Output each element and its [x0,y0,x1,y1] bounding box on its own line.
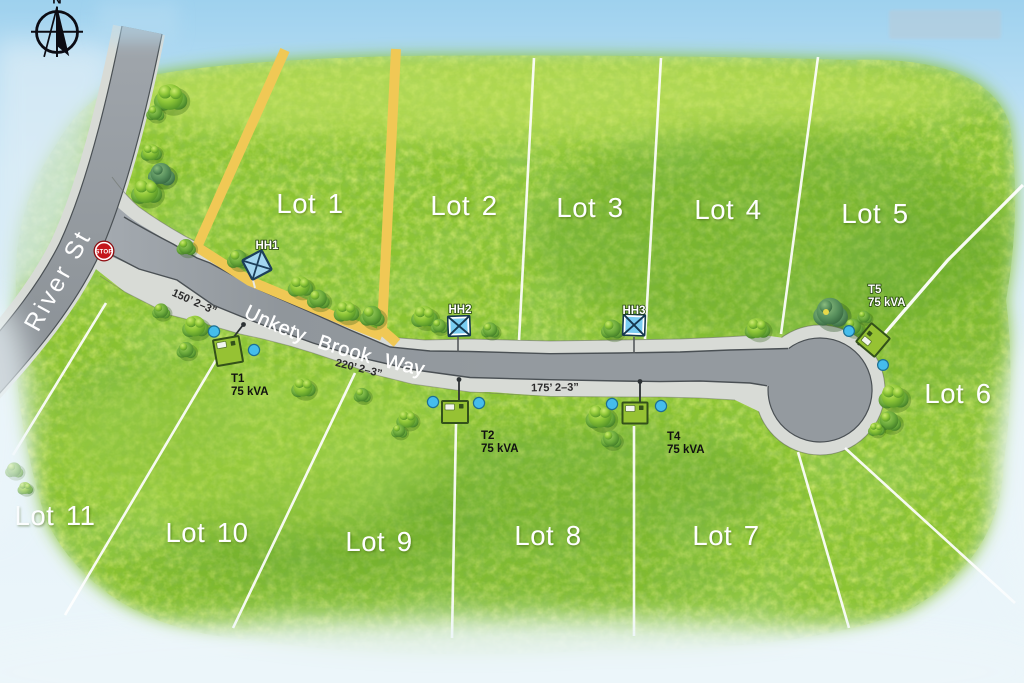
svg-text:HH2: HH2 [448,304,471,316]
svg-text:HH1: HH1 [255,240,279,252]
svg-text:Lot 5: Lot 5 [841,198,908,229]
svg-text:STOP: STOP [95,248,113,255]
svg-text:Lot 7: Lot 7 [692,520,759,551]
svg-text:Lot 1: Lot 1 [276,188,343,219]
svg-text:75 kVA: 75 kVA [868,297,906,309]
svg-text:Lot 9: Lot 9 [345,526,412,557]
svg-text:Lot 8: Lot 8 [514,520,581,551]
svg-text:175’ 2–3”: 175’ 2–3” [531,382,579,395]
svg-text:T2: T2 [481,430,494,442]
svg-text:Lot 10: Lot 10 [166,517,249,548]
svg-text:Lot 6: Lot 6 [924,378,991,409]
svg-text:Lot 2: Lot 2 [430,190,497,221]
svg-text:75 kVA: 75 kVA [667,444,705,456]
svg-text:Lot 3: Lot 3 [556,192,623,223]
svg-text:T5: T5 [868,284,882,296]
svg-text:HH3: HH3 [622,305,645,317]
svg-text:T1: T1 [231,373,245,385]
svg-text:75 kVA: 75 kVA [481,443,519,455]
svg-text:Lot 4: Lot 4 [694,194,761,225]
svg-text:N: N [52,0,61,7]
svg-text:T4: T4 [667,431,681,443]
svg-text:75 kVA: 75 kVA [231,386,269,398]
svg-text:Lot 11: Lot 11 [15,500,96,531]
